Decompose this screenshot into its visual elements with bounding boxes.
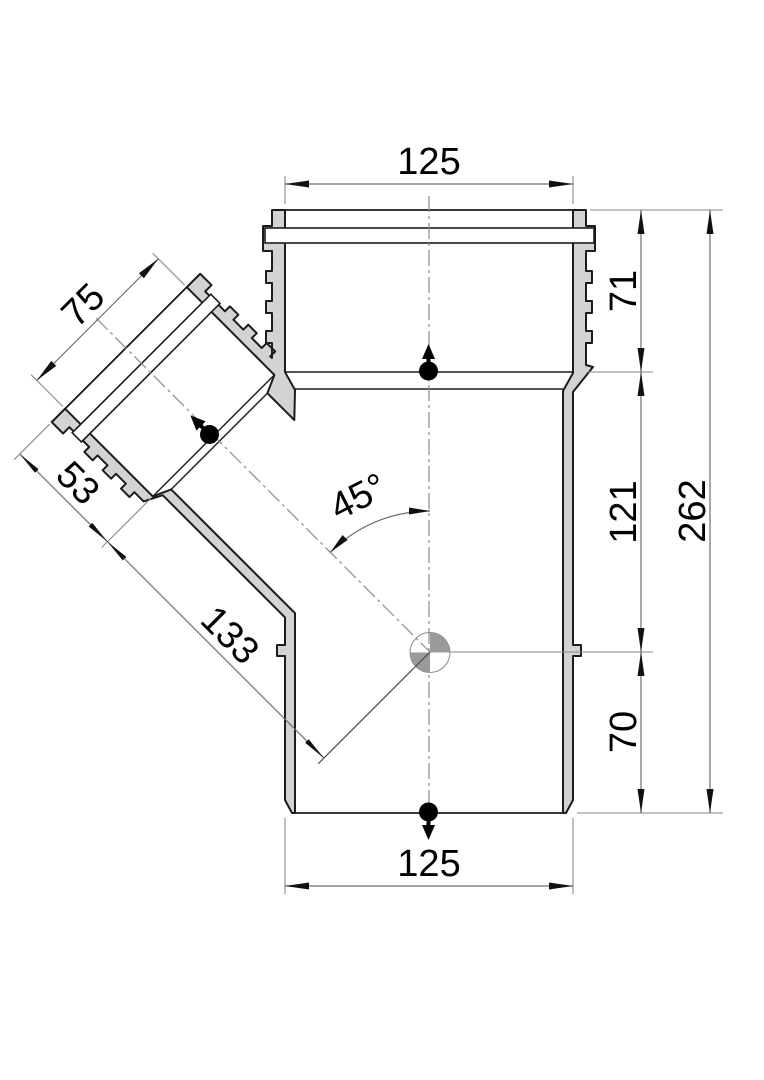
dim-socket-depth: 71 (603, 210, 645, 372)
drawing-page: 125 125 71 121 70 (0, 0, 764, 1080)
dim-lower-length: 70 (603, 652, 645, 813)
flow-marker-branch (184, 409, 223, 448)
dim-label-branch-to-axis: 133 (192, 598, 267, 673)
dim-total-length: 262 (672, 210, 714, 813)
dim-label-top-width: 125 (397, 141, 460, 183)
dim-top-width: 125 (285, 141, 573, 204)
dim-label-bottom-width: 125 (397, 843, 460, 885)
dim-label-lower-length: 70 (603, 711, 645, 753)
dim-branch-angle: 45° (323, 466, 430, 553)
dim-label-branch-socket-depth: 53 (48, 454, 108, 514)
pipe-fitting-drawing: 125 125 71 121 70 (0, 0, 764, 1080)
flow-marker-bottom (419, 803, 438, 841)
dim-label-mid-length: 121 (603, 480, 645, 543)
dim-label-socket-depth: 71 (603, 270, 645, 312)
flow-marker-top (419, 344, 438, 381)
right-socket-and-pipe-wall (563, 210, 595, 813)
dim-mid-length: 121 (603, 372, 645, 652)
dim-label-total-length: 262 (672, 479, 714, 542)
